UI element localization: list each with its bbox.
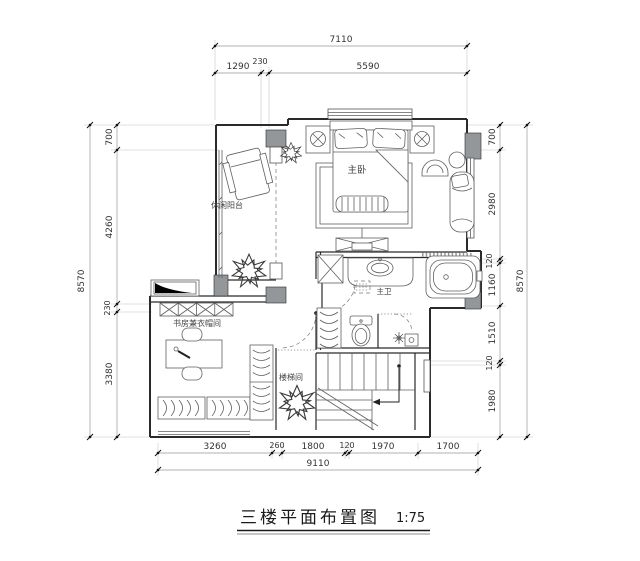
master-bedroom — [306, 121, 474, 251]
bathtub — [426, 256, 482, 298]
bed-bench — [336, 196, 388, 212]
room-label-stairwell: 楼梯间 — [279, 372, 303, 382]
arch-chair — [422, 160, 448, 176]
dim-left-seg-3: 3380 — [105, 362, 115, 385]
pillow — [334, 128, 367, 149]
bath-cabinet-chevron — [317, 308, 341, 348]
dim-right-seg-0: 700 — [488, 128, 498, 145]
dim-bottom-seg-2: 1800 — [302, 442, 325, 452]
dim-bottom-seg-5: 1700 — [437, 442, 460, 452]
headboard — [330, 121, 412, 130]
dim-bottom-seg-3: 120 — [339, 441, 354, 450]
wall-pillar — [465, 133, 481, 159]
dim-bottom-seg-0: 3260 — [204, 442, 227, 452]
stool — [449, 152, 465, 168]
chair — [182, 367, 202, 380]
door-frame — [270, 263, 282, 279]
wall-pillar — [266, 287, 286, 303]
dim-bottom-total: 9110 — [307, 459, 330, 469]
lounge-chair — [221, 146, 275, 201]
toilet — [350, 316, 372, 346]
dim-top-total: 7110 — [330, 35, 353, 45]
sparkle-icon — [393, 332, 405, 344]
master-bathroom — [317, 255, 482, 348]
pillow — [373, 128, 406, 149]
room-label-study-cloakroom: 书房兼衣帽间 — [173, 318, 221, 328]
balcony-window — [219, 150, 222, 278]
wardrobe-x-cabinet — [160, 303, 233, 316]
chaise-lounge — [450, 172, 474, 232]
dim-right-seg-6: 1980 — [488, 389, 498, 412]
stair-direction-arrow — [373, 364, 401, 405]
stair-window — [424, 360, 430, 392]
dim-bottom-seg-4: 1970 — [372, 442, 395, 452]
room-label-leisure-balcony: 休闲阳台 — [211, 200, 243, 210]
leisure-balcony — [221, 146, 275, 201]
dim-top-seg-2: 5590 — [357, 62, 380, 72]
plant-icon — [280, 386, 315, 420]
dim-left-seg-2: 230 — [103, 300, 112, 315]
stair-break-line — [314, 388, 378, 430]
study-door-arc — [281, 313, 316, 348]
tv-cabinet — [336, 228, 388, 251]
dim-right-seg-5: 120 — [485, 355, 494, 370]
clothes-rack-bottom — [158, 397, 250, 419]
dim-left-seg-0: 700 — [105, 128, 115, 145]
plant-icon — [232, 254, 266, 286]
door-frame — [270, 147, 282, 163]
study-cloakroom — [151, 280, 273, 420]
dim-right-seg-4: 1510 — [488, 321, 498, 344]
wall-pillar — [266, 130, 286, 147]
dim-right-seg-3: 1160 — [488, 273, 498, 296]
stair-treads-upper — [328, 353, 400, 390]
drawing-title: 三楼平面布置图 1:75 — [237, 508, 430, 534]
title-scale: 1:75 — [396, 511, 425, 526]
dim-left-seg-1: 4260 — [105, 215, 115, 238]
study-table — [166, 328, 222, 380]
stairwell — [314, 353, 415, 430]
wardrobe-rack-vertical — [250, 345, 273, 420]
dim-top-seg-1: 230 — [252, 57, 267, 66]
floor-plan-page: 7110 1290 230 5590 8570 700 4260 230 338… — [0, 0, 640, 561]
tub-faucet — [477, 271, 482, 281]
shower-tray — [318, 255, 343, 283]
room-label-master-bedroom: 主卧 — [347, 164, 367, 176]
floor-plan-canvas: 7110 1290 230 5590 8570 700 4260 230 338… — [0, 0, 640, 561]
dim-bottom-seg-1: 260 — [269, 441, 284, 450]
section-marker — [151, 280, 199, 296]
chair — [182, 328, 202, 341]
wall-pillar — [214, 275, 228, 296]
bay-window — [328, 109, 412, 119]
title-text: 三楼平面布置图 — [240, 508, 380, 528]
study-window — [158, 432, 250, 435]
dim-left-total: 8570 — [77, 269, 87, 292]
wall-niche-box — [405, 334, 418, 346]
room-label-master-bath: 主卫 — [377, 286, 392, 296]
dim-top-seg-0: 1290 — [227, 62, 250, 72]
dim-right-seg-2: 120 — [485, 253, 494, 268]
dim-right-total: 8570 — [516, 269, 526, 292]
vanity-sink — [348, 258, 413, 286]
dim-right-seg-1: 2980 — [488, 192, 498, 215]
